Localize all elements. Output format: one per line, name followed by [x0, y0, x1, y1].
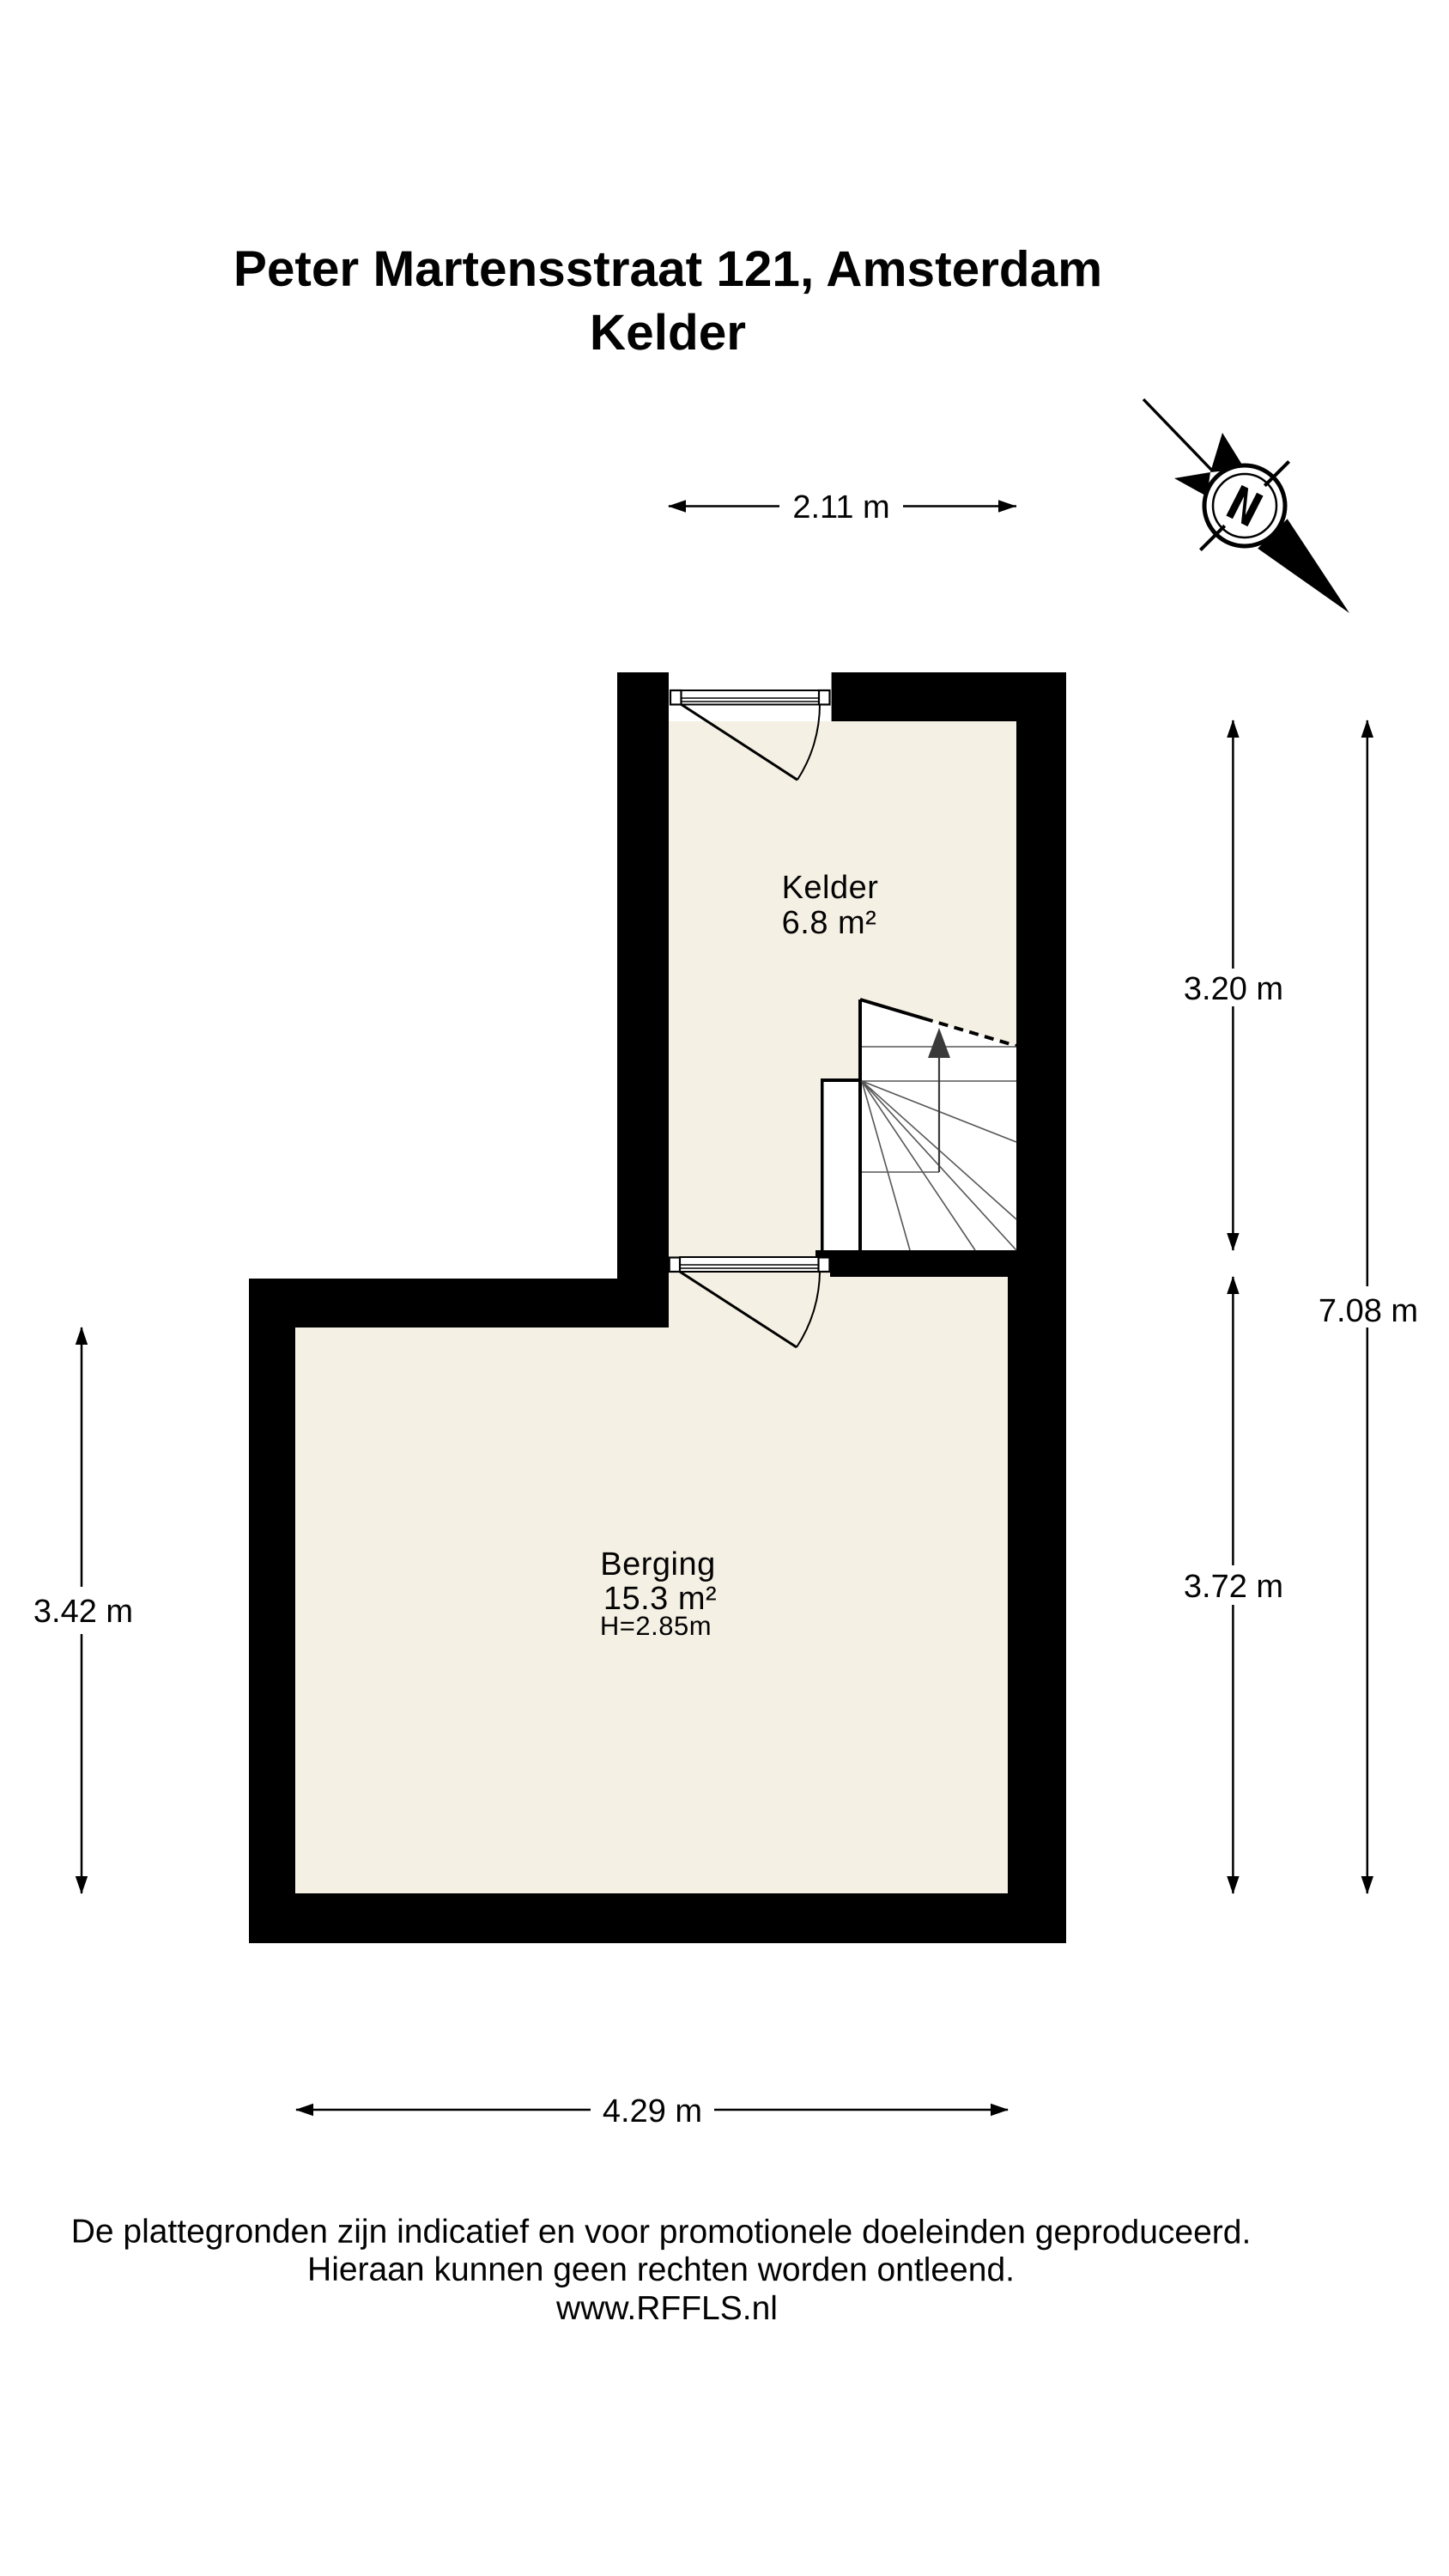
svg-text:3.72 m: 3.72 m: [1184, 1569, 1283, 1605]
svg-text:H=2.85m: H=2.85m: [600, 1611, 712, 1641]
svg-text:Hieraan kunnen geen rechten wo: Hieraan kunnen geen rechten worden ontle…: [307, 2251, 1015, 2289]
svg-text:6.8 m²: 6.8 m²: [782, 905, 877, 941]
svg-text:Kelder: Kelder: [590, 305, 746, 361]
svg-text:2.11 m: 2.11 m: [792, 489, 889, 526]
svg-text:Berging: Berging: [600, 1546, 716, 1583]
svg-text:De plattegronden zijn indicati: De plattegronden zijn indicatief en voor…: [71, 2214, 1252, 2251]
svg-text:7.08 m: 7.08 m: [1319, 1293, 1418, 1329]
svg-text:Kelder: Kelder: [782, 870, 879, 906]
svg-text:3.20 m: 3.20 m: [1184, 971, 1283, 1007]
svg-text:Peter Martensstraat 121, Amste: Peter Martensstraat 121, Amsterdam: [233, 241, 1102, 298]
svg-text:4.29 m: 4.29 m: [603, 2093, 702, 2129]
svg-text:www.RFFLS.nl: www.RFFLS.nl: [555, 2290, 778, 2327]
svg-text:3.42 m: 3.42 m: [33, 1594, 133, 1630]
